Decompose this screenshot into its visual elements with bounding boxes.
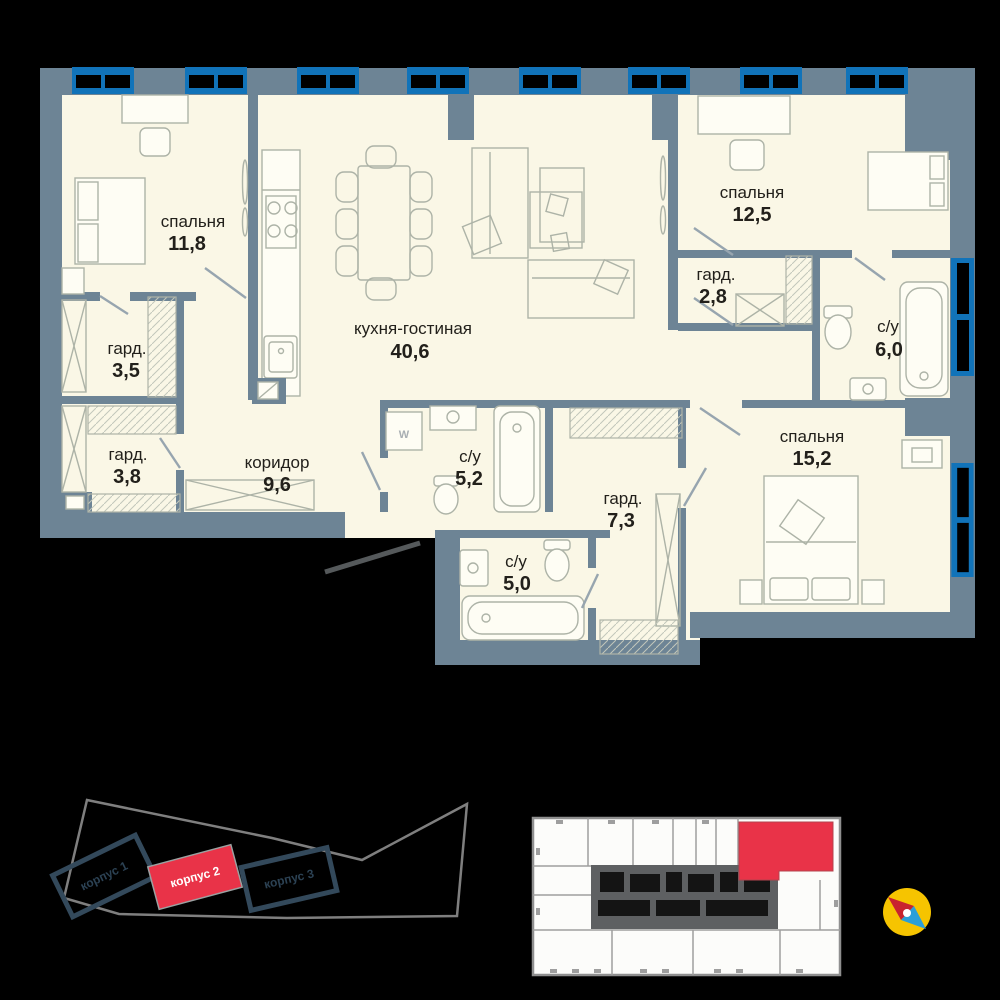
- room-bath1-area: 6,0: [875, 339, 903, 361]
- room-kitchen-name: кухня-гостиная: [354, 319, 472, 338]
- room-bedroom2-name: спальня: [720, 183, 785, 202]
- room-wardrobe1-name: гард.: [108, 339, 147, 358]
- room-corridor-area: 9,6: [263, 474, 291, 496]
- building-marker-3[interactable]: корпус 3: [241, 848, 337, 911]
- room-bath2-area: 5,2: [455, 468, 483, 490]
- room-bedroom1-name: спальня: [161, 212, 226, 231]
- window: [951, 463, 973, 577]
- room-wardrobe2-area: 3,8: [113, 466, 141, 488]
- window: [951, 258, 974, 376]
- room-bath1-name: с/у: [877, 317, 899, 336]
- building-3-label: корпус 3: [263, 866, 316, 891]
- floor-plan-page: спальня 11,8 гард. 3,5 гард. 3,8 коридор…: [0, 0, 1000, 1000]
- room-wardrobe3-area: 2,8: [699, 286, 727, 308]
- building-1-label: корпус 1: [78, 858, 130, 893]
- room-bath3-area: 5,0: [503, 573, 531, 595]
- room-bedroom3-area: 15,2: [793, 448, 832, 470]
- site-boundary: [64, 800, 467, 918]
- window: [185, 67, 247, 94]
- room-wardrobe2-name: гард.: [109, 445, 148, 464]
- room-bedroom2-area: 12,5: [733, 204, 772, 226]
- room-wardrobe4-name: гард.: [604, 489, 643, 508]
- room-bath2-name: с/у: [459, 447, 481, 466]
- window: [72, 67, 134, 94]
- window: [846, 67, 908, 94]
- highlighted-unit[interactable]: [739, 822, 833, 880]
- compass-icon: [883, 888, 931, 936]
- room-wardrobe1-area: 3,5: [112, 360, 140, 382]
- apartment-plan: спальня 11,8 гард. 3,5 гард. 3,8 коридор…: [40, 67, 975, 665]
- washer-label: W: [399, 429, 410, 441]
- building-marker-2[interactable]: корпус 2: [148, 845, 242, 910]
- window: [519, 67, 581, 94]
- site-plan: корпус 1 корпус 2 корпус 3: [53, 800, 467, 918]
- room-wardrobe4-area: 7,3: [607, 510, 635, 532]
- room-kitchen-area: 40,6: [391, 341, 430, 363]
- window: [740, 67, 802, 94]
- window: [628, 67, 690, 94]
- window: [297, 67, 359, 94]
- floor-overview: [533, 818, 840, 975]
- room-bedroom3-name: спальня: [780, 427, 845, 446]
- entrance-door: [325, 543, 420, 572]
- room-corridor-name: коридор: [245, 453, 310, 472]
- room-bedroom1-area: 11,8: [168, 233, 206, 255]
- room-wardrobe3-name: гард.: [697, 265, 736, 284]
- room-bath3-name: с/у: [505, 552, 527, 571]
- window: [407, 67, 469, 94]
